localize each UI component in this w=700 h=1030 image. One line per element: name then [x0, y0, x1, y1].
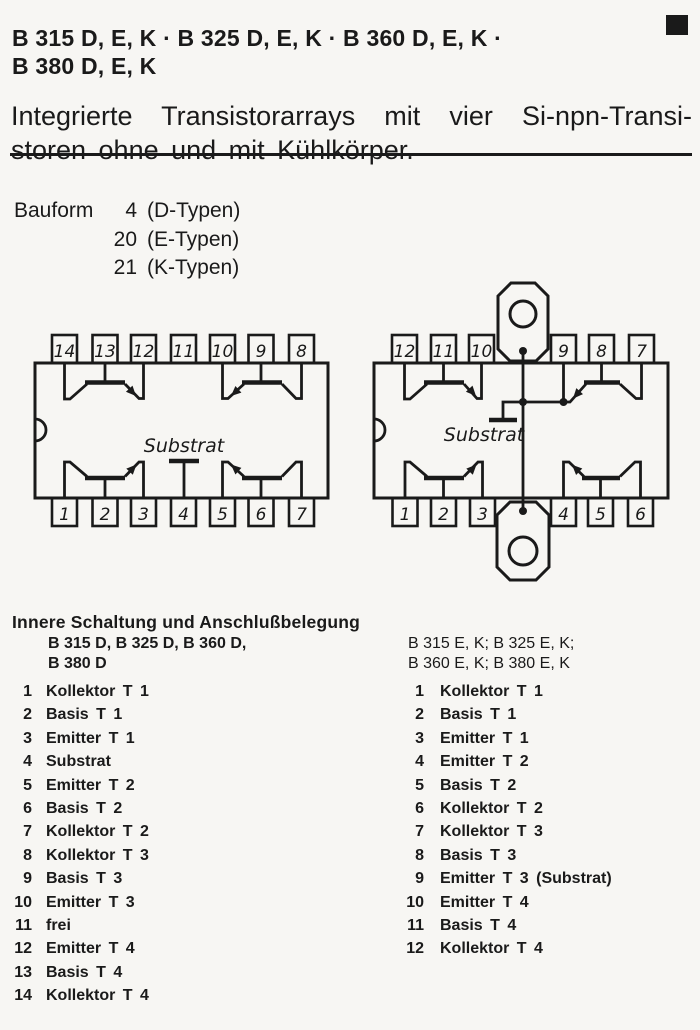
- pin-row: 5Emitter T 2: [6, 774, 149, 797]
- pin-number: 3: [477, 505, 488, 525]
- row-label: Kollektor T 1: [440, 680, 543, 703]
- pin-row: 10Emitter T 4: [398, 891, 612, 914]
- pin-number: 9: [558, 342, 569, 362]
- pinout-right-header: B 315 E, K; B 325 E, K;B 360 E, K; B 380…: [408, 634, 574, 673]
- tab-hole: [509, 537, 537, 565]
- pin-row: 9Basis T 3: [6, 867, 149, 890]
- row-label: Basis T 4: [440, 914, 516, 937]
- pin-number: 10: [212, 342, 234, 362]
- row-label: Kollektor T 2: [440, 797, 543, 820]
- pin-number: 10: [471, 342, 493, 362]
- junction-dot: [519, 507, 527, 515]
- pin-number: 4: [558, 505, 569, 525]
- row-label: Emitter T 4: [440, 891, 529, 914]
- subtitle-line-2: storen ohne und mit Kühlkörper.: [11, 135, 414, 165]
- row-number: 3: [6, 727, 32, 750]
- row-label: Kollektor T 4: [46, 984, 149, 1007]
- pin-row: 13Basis T 4: [6, 961, 149, 984]
- row-label: Emitter T 1: [46, 727, 135, 750]
- row-label: (K-Typen): [147, 254, 239, 283]
- row-number: 6: [6, 797, 32, 820]
- row-label: Basis T 4: [46, 961, 122, 984]
- row-label: Kollektor T 3: [46, 844, 149, 867]
- row-number: 12: [398, 937, 424, 960]
- row-label: frei: [46, 914, 71, 937]
- pin-number: 9: [256, 342, 267, 362]
- pin-number: 2: [100, 505, 111, 525]
- row-label: Basis T 2: [440, 774, 516, 797]
- row-number: 9: [398, 867, 424, 890]
- row-number: 10: [6, 891, 32, 914]
- bauform-label: Bauform: [14, 197, 93, 226]
- page-title: B 315 D, E, K · B 325 D, E, K · B 360 D,…: [12, 24, 662, 80]
- row-number: 12: [6, 937, 32, 960]
- pin-row: 11frei: [6, 914, 149, 937]
- pin-row: 3Emitter T 1: [6, 727, 149, 750]
- row-label: Kollektor T 1: [46, 680, 149, 703]
- pin-number: 4: [178, 505, 189, 525]
- row-number: 8: [6, 844, 32, 867]
- pin-number: 11: [173, 342, 195, 362]
- row-label: Emitter T 4: [46, 937, 135, 960]
- row-number: 2: [6, 703, 32, 726]
- pin-number: 7: [636, 342, 647, 362]
- pin-row: 8Basis T 3: [398, 844, 612, 867]
- row-label: Substrat: [46, 750, 111, 773]
- pin-row: 4Substrat: [6, 750, 149, 773]
- index-notch: [35, 419, 46, 441]
- dip12-package-diagram: 12 11 10 9 8 7 1 2 3 4 5 6 Substrat: [368, 280, 682, 592]
- row-number: 5: [398, 774, 424, 797]
- row-label: Emitter T 3: [46, 891, 135, 914]
- row-label: Kollektor T 4: [440, 937, 543, 960]
- row-number: 13: [6, 961, 32, 984]
- datasheet-page: B 315 D, E, K · B 325 D, E, K · B 360 D,…: [0, 0, 700, 1030]
- pin-row: 11Basis T 4: [398, 914, 612, 937]
- pinout-left-header-line2: B 380 D: [48, 655, 107, 672]
- pinout-left-header-line1: B 315 D, B 325 D, B 360 D,: [48, 635, 246, 652]
- dip14-package-diagram: 14 13 12 11 10 9 8 1 2 3 4 5 6 7 Substra…: [28, 330, 342, 532]
- pin-row: 5Basis T 2: [398, 774, 612, 797]
- bauform-row: 20(E-Typen): [95, 226, 240, 255]
- row-label: (E-Typen): [147, 226, 239, 255]
- row-number: 3: [398, 727, 424, 750]
- pin-row: 2Basis T 1: [398, 703, 612, 726]
- row-number: 2: [398, 703, 424, 726]
- row-number: 4: [95, 197, 137, 226]
- row-number: 1: [6, 680, 32, 703]
- pin-row: 2Basis T 1: [6, 703, 149, 726]
- row-label: Emitter T 3 (Substrat): [440, 867, 612, 890]
- row-number: 6: [398, 797, 424, 820]
- pin-number: 7: [296, 505, 307, 525]
- row-label: Basis T 2: [46, 797, 122, 820]
- ic-body: [35, 363, 328, 498]
- pin-number: 12: [394, 342, 416, 362]
- pin-row: 9Emitter T 3 (Substrat): [398, 867, 612, 890]
- pin-number: 5: [595, 505, 606, 525]
- row-number: 21: [95, 254, 137, 283]
- row-number: 20: [95, 226, 137, 255]
- pin-number: 2: [438, 505, 449, 525]
- row-number: 11: [398, 914, 424, 937]
- pin-number: 13: [94, 342, 116, 362]
- pin-number: 6: [635, 505, 646, 525]
- row-label: Basis T 1: [440, 703, 516, 726]
- tab-hole: [510, 301, 536, 327]
- junction-dot: [519, 347, 527, 355]
- pin-row: 6Basis T 2: [6, 797, 149, 820]
- pin-list-ek-types: 1Kollektor T 12Basis T 13Emitter T 14Emi…: [398, 680, 612, 961]
- junction-dot: [519, 398, 527, 406]
- junction-dot: [560, 398, 568, 406]
- row-number: 7: [398, 820, 424, 843]
- pin-number: 8: [596, 342, 607, 362]
- pinout-right-header-line1: B 315 E, K; B 325 E, K;: [408, 635, 574, 652]
- pin-number: 8: [296, 342, 307, 362]
- row-number: 14: [6, 984, 32, 1007]
- subtitle-line-1: Integrierte Transistorarrays mit vier Si…: [11, 99, 692, 133]
- row-number: 7: [6, 820, 32, 843]
- row-number: 8: [398, 844, 424, 867]
- substrate-label: Substrat: [144, 435, 226, 457]
- index-notch: [374, 419, 385, 441]
- bauform-block: Bauform 4(D-Typen)20(E-Typen)21(K-Typen): [14, 197, 240, 283]
- divider-rule: [10, 153, 692, 156]
- pin-row: 6Kollektor T 2: [398, 797, 612, 820]
- row-number: 4: [6, 750, 32, 773]
- pin-row: 8Kollektor T 3: [6, 844, 149, 867]
- pin-row: 1Kollektor T 1: [6, 680, 149, 703]
- pin-number: 1: [59, 505, 70, 525]
- row-label: Basis T 3: [46, 867, 122, 890]
- row-number: 1: [398, 680, 424, 703]
- title-line-1: B 315 D, E, K · B 325 D, E, K · B 360 D,…: [12, 25, 502, 51]
- row-number: 5: [6, 774, 32, 797]
- pin-number: 14: [54, 342, 76, 362]
- substrate-label: Substrat: [444, 424, 526, 446]
- row-label: Basis T 3: [440, 844, 516, 867]
- pin-number: 5: [217, 505, 228, 525]
- pinout-left-header: B 315 D, B 325 D, B 360 D,B 380 D: [48, 634, 246, 673]
- pin-list-d-types: 1Kollektor T 12Basis T 13Emitter T 14Sub…: [6, 680, 149, 1008]
- pin-row: 3Emitter T 1: [398, 727, 612, 750]
- pin-number: 12: [133, 342, 155, 362]
- row-number: 4: [398, 750, 424, 773]
- pin-row: 4Emitter T 2: [398, 750, 612, 773]
- row-label: Basis T 1: [46, 703, 122, 726]
- pin-row: 12Emitter T 4: [6, 937, 149, 960]
- row-label: Kollektor T 2: [46, 820, 149, 843]
- pin-row: 1Kollektor T 1: [398, 680, 612, 703]
- row-number: 11: [6, 914, 32, 937]
- pin-number: 1: [400, 505, 411, 525]
- row-number: 9: [6, 867, 32, 890]
- pinout-right-header-line2: B 360 E, K; B 380 E, K: [408, 655, 570, 672]
- section-heading: Innere Schaltung und Anschlußbelegung: [12, 612, 360, 633]
- pin-row: 12Kollektor T 4: [398, 937, 612, 960]
- subtitle: Integrierte Transistorarrays mit vier Si…: [11, 99, 692, 167]
- row-number: 10: [398, 891, 424, 914]
- pin-row: 14Kollektor T 4: [6, 984, 149, 1007]
- pin-row: 10Emitter T 3: [6, 891, 149, 914]
- pin-number: 11: [433, 342, 455, 362]
- row-label: Emitter T 1: [440, 727, 529, 750]
- row-label: (D-Typen): [147, 197, 240, 226]
- pin-row: 7Kollektor T 3: [398, 820, 612, 843]
- title-line-2: B 380 D, E, K: [12, 53, 157, 79]
- row-label: Emitter T 2: [46, 774, 135, 797]
- row-label: Kollektor T 3: [440, 820, 543, 843]
- revision-marker-square: [666, 15, 688, 35]
- bauform-rows: 4(D-Typen)20(E-Typen)21(K-Typen): [95, 197, 240, 283]
- pin-number: 6: [256, 505, 267, 525]
- bauform-row: 4(D-Typen): [95, 197, 240, 226]
- bauform-row: 21(K-Typen): [95, 254, 240, 283]
- pin-row: 7Kollektor T 2: [6, 820, 149, 843]
- row-label: Emitter T 2: [440, 750, 529, 773]
- pin-number: 3: [138, 505, 149, 525]
